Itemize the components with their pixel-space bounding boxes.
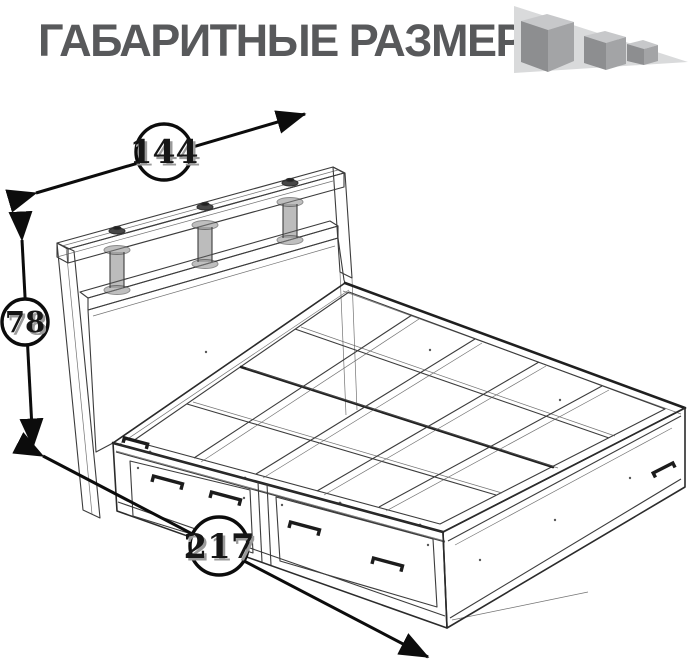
dimension-height: 78 78 — [2, 240, 48, 447]
page-title: ГАБАРИТНЫЕ РАЗМЕРЫ — [38, 15, 567, 66]
drawer-handle-icon — [289, 522, 320, 536]
dimension-value-height: 78 — [5, 305, 45, 339]
three-cubes-logo-icon — [514, 6, 688, 73]
bed-platform-top — [113, 283, 685, 545]
diagram-canvas: ГАБАРИТНЫЕ РАЗМЕРЫ — [0, 0, 700, 669]
headboard-right-panel — [333, 167, 357, 415]
headboard-panel — [88, 238, 345, 452]
bed-wireframe-drawing — [57, 167, 685, 628]
headboard-left-panel — [57, 243, 100, 518]
drawer-handle-icon — [372, 558, 403, 572]
dimensions-diagram-page: ГАБАРИТНЫЕ РАЗМЕРЫ — [0, 0, 700, 669]
drawer-handle-icon — [152, 476, 183, 490]
dimension-value-width: 144 — [130, 132, 199, 171]
drawer-handle-icon — [210, 492, 241, 506]
corner-bracket-icon — [653, 463, 675, 477]
dimension-value-length: 217 — [184, 527, 255, 567]
dimension-width: 144 144 — [36, 114, 305, 193]
foot-end-face — [443, 408, 685, 628]
